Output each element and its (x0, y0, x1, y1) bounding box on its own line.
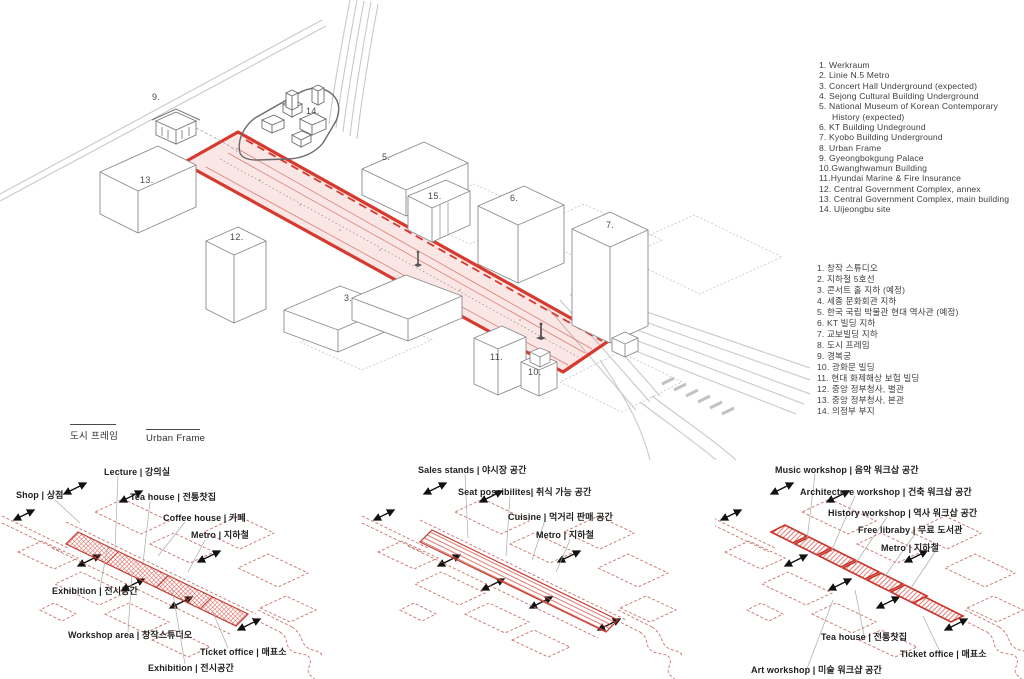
legend-item: 1. Werkraum (819, 60, 1015, 70)
label-tea-house: Tea house | 전통찻집 (130, 490, 216, 503)
label-workshop-area: Workshop area | 창작스튜디오 (68, 628, 192, 641)
label-metro: Metro | 지하철 (881, 541, 939, 554)
legend-item: 14. 의정부 부지 (817, 406, 959, 417)
legend-item: 4. Sejong Cultural Building Underground (819, 91, 1015, 101)
urban-frame-key-ko: 도시 프레임 (70, 428, 118, 442)
label-music-workshop: Music workshop | 음악 워크삽 공간 (775, 463, 919, 476)
legend-item: 6. KT 빌딩 지하 (817, 318, 959, 329)
legend-item: 8. Urban Frame (819, 143, 1015, 153)
architectural-diagram-page: 9. 14. 13. 12. 5. 15. 6. 7. 3. 11. 10. 1… (0, 0, 1024, 679)
label-lecture: Lecture | 강의실 (104, 465, 170, 478)
label-cuisine: Cuisine | 먹거리 판매 공간 (508, 510, 613, 523)
label-art-workshop: Art workshop | 미술 워크샵 공간 (751, 663, 882, 676)
building-callout-15: 15. (428, 191, 442, 201)
building-callout-11: 11. (490, 352, 503, 362)
label-free-library: Free libraby | 무료 도서관 (858, 523, 963, 536)
building-callout-13: 13. (140, 175, 154, 185)
legend-item: 3. Concert Hall Underground (expected) (819, 81, 1015, 91)
label-tea-house: Tea house | 전통찻집 (821, 630, 907, 643)
label-seat-possibilities: Seat possibilites| 취식 가능 공간 (458, 485, 591, 498)
legend-item: 13. 중앙 정부청사, 본관 (817, 395, 959, 406)
legend-item: 2. 지하철 5호선 (817, 274, 959, 285)
label-ticket-office: Ticket office | 매표소 (200, 645, 287, 658)
legend-item: 8. 도시 프레임 (817, 340, 959, 351)
building-callout-6: 6. (510, 193, 518, 203)
legend-item: 6. KT Building Undeground (819, 122, 1015, 132)
label-sales-stands: Sales stands | 야시장 공간 (418, 463, 527, 476)
building-callout-10: 10. (528, 367, 542, 377)
key-line (146, 429, 200, 430)
diagram-exhibition: Lecture | 강의실 Shop | 상점 Tea house | 전통찻집… (0, 460, 345, 679)
legend-item: 4. 세종 문화회관 지하 (817, 296, 959, 307)
site-plan-drawing (0, 0, 810, 460)
legend-item: 7. Kyobo Building Underground (819, 132, 1015, 142)
legend-item: 1. 창작 스튜디오 (817, 263, 959, 274)
legend-item: 9. 경복궁 (817, 351, 959, 362)
legend-item: 2. Linie N.5 Metro (819, 70, 1015, 80)
label-exhibition-upper: Exhibition | 전시공간 (52, 584, 138, 597)
label-metro: Metro | 지하철 (536, 528, 594, 541)
label-history-workshop: History workshop | 역사 워크삽 공간 (828, 506, 977, 519)
building-callout-5: 5. (382, 152, 390, 162)
crosswalk-stripes (662, 378, 734, 414)
legend-item: 11. 현대 화제해상 보험 빌딩 (817, 373, 959, 384)
legend-item: 3. 콘서트 홀 지하 (예정) (817, 285, 959, 296)
legend-korean: 1. 창작 스튜디오 2. 지하철 5호선 3. 콘서트 홀 지하 (예정) 4… (817, 263, 959, 417)
label-shop: Shop | 상점 (16, 488, 63, 501)
building-callout-12: 12. (230, 232, 244, 242)
site-axonometric-plan: 9. 14. 13. 12. 5. 15. 6. 7. 3. 11. 10. (0, 0, 810, 460)
building-callout-9: 9. (152, 92, 160, 102)
legend-item: 5. National Museum of Korean Contemporar… (819, 101, 1015, 122)
legend-item: 12. 중앙 정부청사, 별관 (817, 384, 959, 395)
building-6 (478, 186, 564, 283)
diagram-workshops: Music workshop | 음악 워크삽 공간 Architecture … (715, 460, 1024, 679)
legend-item: 10. 광화문 빌딩 (817, 362, 959, 373)
key-line (70, 424, 116, 425)
legend-item: 14. Uijeongbu site (819, 204, 1015, 214)
label-coffee-house: Coffee house | 카페 (163, 511, 246, 524)
legend-item: 7. 교보빌딩 지하 (817, 329, 959, 340)
urban-frame-key-en: Urban Frame (146, 433, 205, 444)
legend-item: 5. 한국 국립 박물관 현대 역사관 (예정) (817, 307, 959, 318)
legend-item: 9. Gyeongbokgung Palace (819, 153, 1015, 163)
building-callout-7: 7. (606, 220, 614, 230)
legend-item: 11.Hyundai Marine & Fire Insurance (819, 173, 1015, 183)
label-architecture-workshop: Architecture workshop | 건축 워크삽 공간 (800, 485, 972, 498)
legend-english: 1. Werkraum 2. Linie N.5 Metro 3. Concer… (819, 60, 1015, 215)
legend-item: 10.Gwanghwamun Building (819, 163, 1015, 173)
label-ticket-office: Ticket office | 매표소 (900, 647, 987, 660)
building-callout-3: 3. (344, 293, 352, 303)
label-exhibition-lower: Exhibition | 전시공간 (148, 661, 234, 674)
building-13 (100, 146, 196, 233)
label-metro: Metro | 지하철 (191, 528, 249, 541)
building-7 (572, 212, 648, 343)
band-corner-box (612, 332, 638, 357)
diagram-food-market: Sales stands | 야시장 공간 Seat possibilites|… (360, 460, 700, 679)
legend-item: 13. Central Government Complex, main bui… (819, 194, 1015, 204)
building-callout-14: 14. (306, 106, 320, 116)
legend-item: 12. Central Government Complex, annex (819, 184, 1015, 194)
